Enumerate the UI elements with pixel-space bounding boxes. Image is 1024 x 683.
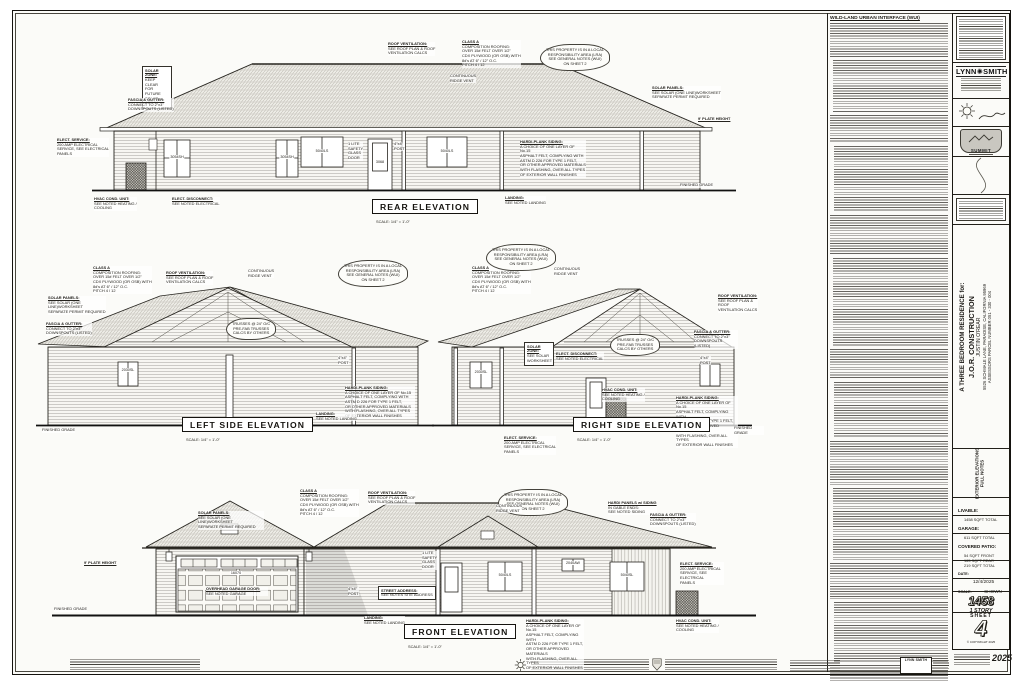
callout-note: SOLAR PANELS: SEE SOLAR (ONE LINE)WORKSH… (652, 86, 721, 100)
callout-note: 4"x4" POST (394, 142, 405, 151)
patio-area-cell: COVERED PATIO: 54 SQFT FRONT 165 SQFT RE… (953, 534, 1009, 561)
callout-note: FASCIA & GUTTER: CONNECT TO 2"x3" DOWNSP… (694, 330, 738, 349)
garage-area-cell: GARAGE: 611 SQFT TOTAL (953, 516, 1009, 534)
callout-note: 4"x4" POST (338, 356, 349, 365)
window-size-label: 2030SL (121, 368, 136, 372)
window-size-label: 5040LS (440, 149, 455, 153)
date-cell: DATE: 12/4/2025 (953, 561, 1009, 579)
rear-elevation-scale: SCALE: 1/4" = 1'-0" (376, 219, 410, 224)
callout-note: SOLAR PANELS: SEE SOLAR (ONE LINE)WORKSH… (198, 511, 264, 530)
signature-scribble (979, 113, 1005, 119)
livable-area-cell: LIVABLE: 1458 SQFT TOTAL (953, 498, 1009, 516)
callout-note: ELECT. SERVICE: 200 AMP ELECTRICAL SERVI… (504, 436, 556, 455)
designer-logo-block: LYNN✺SMITH (953, 63, 1009, 99)
title-block: LYNN✺SMITH (952, 13, 1010, 650)
callout-note: FASCIA & GUTTER: CONNECT TO 2"x3" DOWNSP… (650, 513, 696, 527)
sheet-number: 4 (953, 619, 1009, 640)
callout-note: 9' PLATE HEIGHT (698, 117, 730, 122)
callout-note: CLASS A COMPOSITION ROOFING: OVER 15# FE… (93, 266, 152, 294)
callout-note: 4"x4" POST (700, 356, 711, 365)
callout-note: FASCIA & GUTTER: CONNECT TO 2"x3" DOWNSP… (128, 98, 174, 112)
callout-note: HARDI-PLANK SIDING: A CHOICE OF ONE LAYE… (526, 619, 584, 671)
door-size-label: 3068 (375, 160, 385, 164)
discipline-line2: FULL NOTES (980, 444, 985, 504)
callout-note: FASCIA & GUTTER: CONNECT TO 2"x3" DOWNSP… (46, 322, 92, 336)
callout-note: FINISHED GRADE (680, 183, 713, 188)
callout-note: FINISHED GRADE (42, 428, 75, 433)
callout-note: FINISHED GRADE (54, 607, 87, 612)
callout-note: CONTINUOUS RIDGE VENT (554, 267, 580, 276)
designer-logo: LYNN✺SMITH (956, 66, 1006, 77)
right-elevation-scale: SCALE: 1/4" = 1'-0" (577, 437, 611, 442)
callout-note: ELECT. SERVICE: 200 AMP ELECTRICAL SERVI… (680, 562, 724, 585)
summit-badge-block: SUMMIT (953, 127, 1009, 157)
title-block-note-box (953, 195, 1009, 225)
window-size-label: 2040AW (565, 561, 581, 565)
sheet-discipline-block: EXTERIOR ELEVATIONS FULL NOTES (953, 449, 1009, 498)
title-block-divider-curve (953, 157, 1009, 195)
callout-note: TRUSSES @ 24" O/C PRE-FAB TRUSSES CALCS … (610, 334, 660, 356)
callout-note: HARDI-PLANK SIDING: A CHOICE OF ONE LAYE… (520, 140, 586, 178)
callout-note: THIS PROPERTY IS IN A LOCAL RESPONSIBILI… (338, 260, 408, 287)
callout-note: ELECT. DISCONNECT: SEE NOTED ELECTRICAL (556, 352, 604, 361)
callout-note: FINISHED GRADE (734, 426, 764, 435)
callout-note: ROOF VENTILATION: SEE ROOF PLAN & ROOF V… (718, 294, 758, 313)
sun-icon (953, 99, 1009, 127)
callout-note: 4"x4" POST (348, 587, 359, 596)
callout-note: CLASS A COMPOSITION ROOFING: OVER 15# FE… (462, 40, 521, 68)
callout-note: THIS PROPERTY IS IN A LOCAL RESPONSIBILI… (486, 244, 556, 271)
annotation-layer: SOLAR ZONE: KEEP CLEAR FOR FUTURE SOLAR … (0, 0, 1024, 683)
project-apn: ASSESSORS PARCEL NUMBER 051 - 330 - 004 (987, 232, 992, 442)
callout-note: 1 LITE SAFETY GLASS DOOR (422, 551, 437, 570)
callout-note: SOLAR PANELS: SEE SOLAR (ONE LINE)WORKSH… (48, 296, 106, 315)
window-size-label: 2030SL (474, 370, 489, 374)
sun-signature-block (953, 99, 1009, 127)
sheet-number-cell: SHEET 4 © COPYRIGHT 2025 (953, 613, 1009, 650)
window-size-label: 5040LS (498, 573, 513, 577)
callout-note: CONTINUOUS RIDGE VENT (248, 269, 274, 278)
callout-note: HVAC COND. UNIT: SEE NOTED HEATING / COO… (676, 619, 719, 633)
callout-note: OVERHEAD GARAGE DOOR: SEE NOTED GARAGE (206, 587, 268, 596)
sqft-big-number: 1458 (968, 596, 994, 608)
rear-elevation-label: REAR ELEVATION (372, 199, 478, 214)
callout-note: LANDING: SEE NOTED LANDING (316, 412, 357, 421)
callout-note: CONTINUOUS RIDGE VENT (496, 504, 522, 513)
callout-note: CLASS A COMPOSITION ROOFING: OVER 15# FE… (300, 489, 359, 517)
callout-note: TRUSSES @ 24" O/C PRE-FAB TRUSSES CALCS … (226, 318, 276, 340)
project-info-block: A THREE BEDROOM RESIDENCE for: J.O.R. CO… (953, 225, 1009, 449)
callout-note: LANDING: SEE NOTED LANDING (364, 616, 405, 625)
title-block-jurisdiction-note (953, 14, 1009, 63)
left-elevation-scale: SCALE: 1/4" = 1'-0" (186, 437, 220, 442)
front-elevation-scale: SCALE: 1/4" = 1'-0" (408, 644, 442, 649)
year-stamp: 2025 (992, 653, 1012, 663)
left-elevation-label: LEFT SIDE ELEVATION (182, 417, 313, 432)
callout-note: ROOF VENTILATION: SEE ROOF PLAN & ROOF V… (166, 271, 213, 285)
architectural-sheet: SOLAR ZONE: KEEP CLEAR FOR FUTURE SOLAR … (0, 0, 1024, 683)
project-title: A THREE BEDROOM RESIDENCE for: (959, 232, 967, 442)
callout-note: 1 LITE SAFETY GLASS DOOR (348, 142, 363, 161)
callout-note: SOLAR ZONE: SEE SOLAR WORKSHEET (524, 342, 554, 366)
summit-badge: SUMMIT (960, 129, 1002, 153)
callout-note: ROOF VENTILATION: SEE ROOF PLAN & ROOF V… (368, 491, 415, 505)
window-size-label: 5040SL (620, 573, 635, 577)
sqft-cell: 1458 1 STORY (953, 592, 1009, 613)
callout-note: LANDING: SEE NOTED LANDING (505, 196, 546, 205)
callout-note: CONTINUOUS RIDGE VENT (450, 74, 476, 83)
right-elevation-label: RIGHT SIDE ELEVATION (573, 417, 710, 432)
callout-note: THIS PROPERTY IS IN A LOCAL RESPONSIBILI… (540, 44, 610, 71)
callout-note: ROOF VENTILATION: SEE ROOF PLAN & ROOF V… (388, 42, 435, 56)
window-size-label: 5040LS (315, 149, 330, 153)
callout-note: 9' PLATE HEIGHT (84, 561, 116, 566)
callout-note: ELECT. DISCONNECT: SEE NOTED ELECTRICAL (172, 197, 220, 206)
mountains-icon (968, 134, 994, 143)
window-size-label: 3054SH (169, 155, 184, 159)
copyright-note: © COPYRIGHT 2025 (953, 640, 1009, 644)
scale-cell: SCALE: SHOWN (953, 579, 1009, 592)
front-elevation-label: FRONT ELEVATION (404, 624, 516, 639)
door-size-label: 16070 (230, 571, 242, 575)
callout-note: HVAC COND. UNIT: SEE NOTED HEATING / COO… (602, 388, 645, 402)
callout-note: HVAC COND. UNIT: SEE NOTED HEATING / COO… (94, 197, 137, 211)
client-company: J.O.R. CONSTRUCTION (967, 232, 976, 442)
callout-note: ELECT. SERVICE: 200 AMP ELECTRICAL SERVI… (57, 138, 109, 157)
callout-note: STREET ADDRESS: SEE NOTES SITE ADDRESS (378, 586, 436, 600)
window-size-label: 3054SH (279, 155, 294, 159)
